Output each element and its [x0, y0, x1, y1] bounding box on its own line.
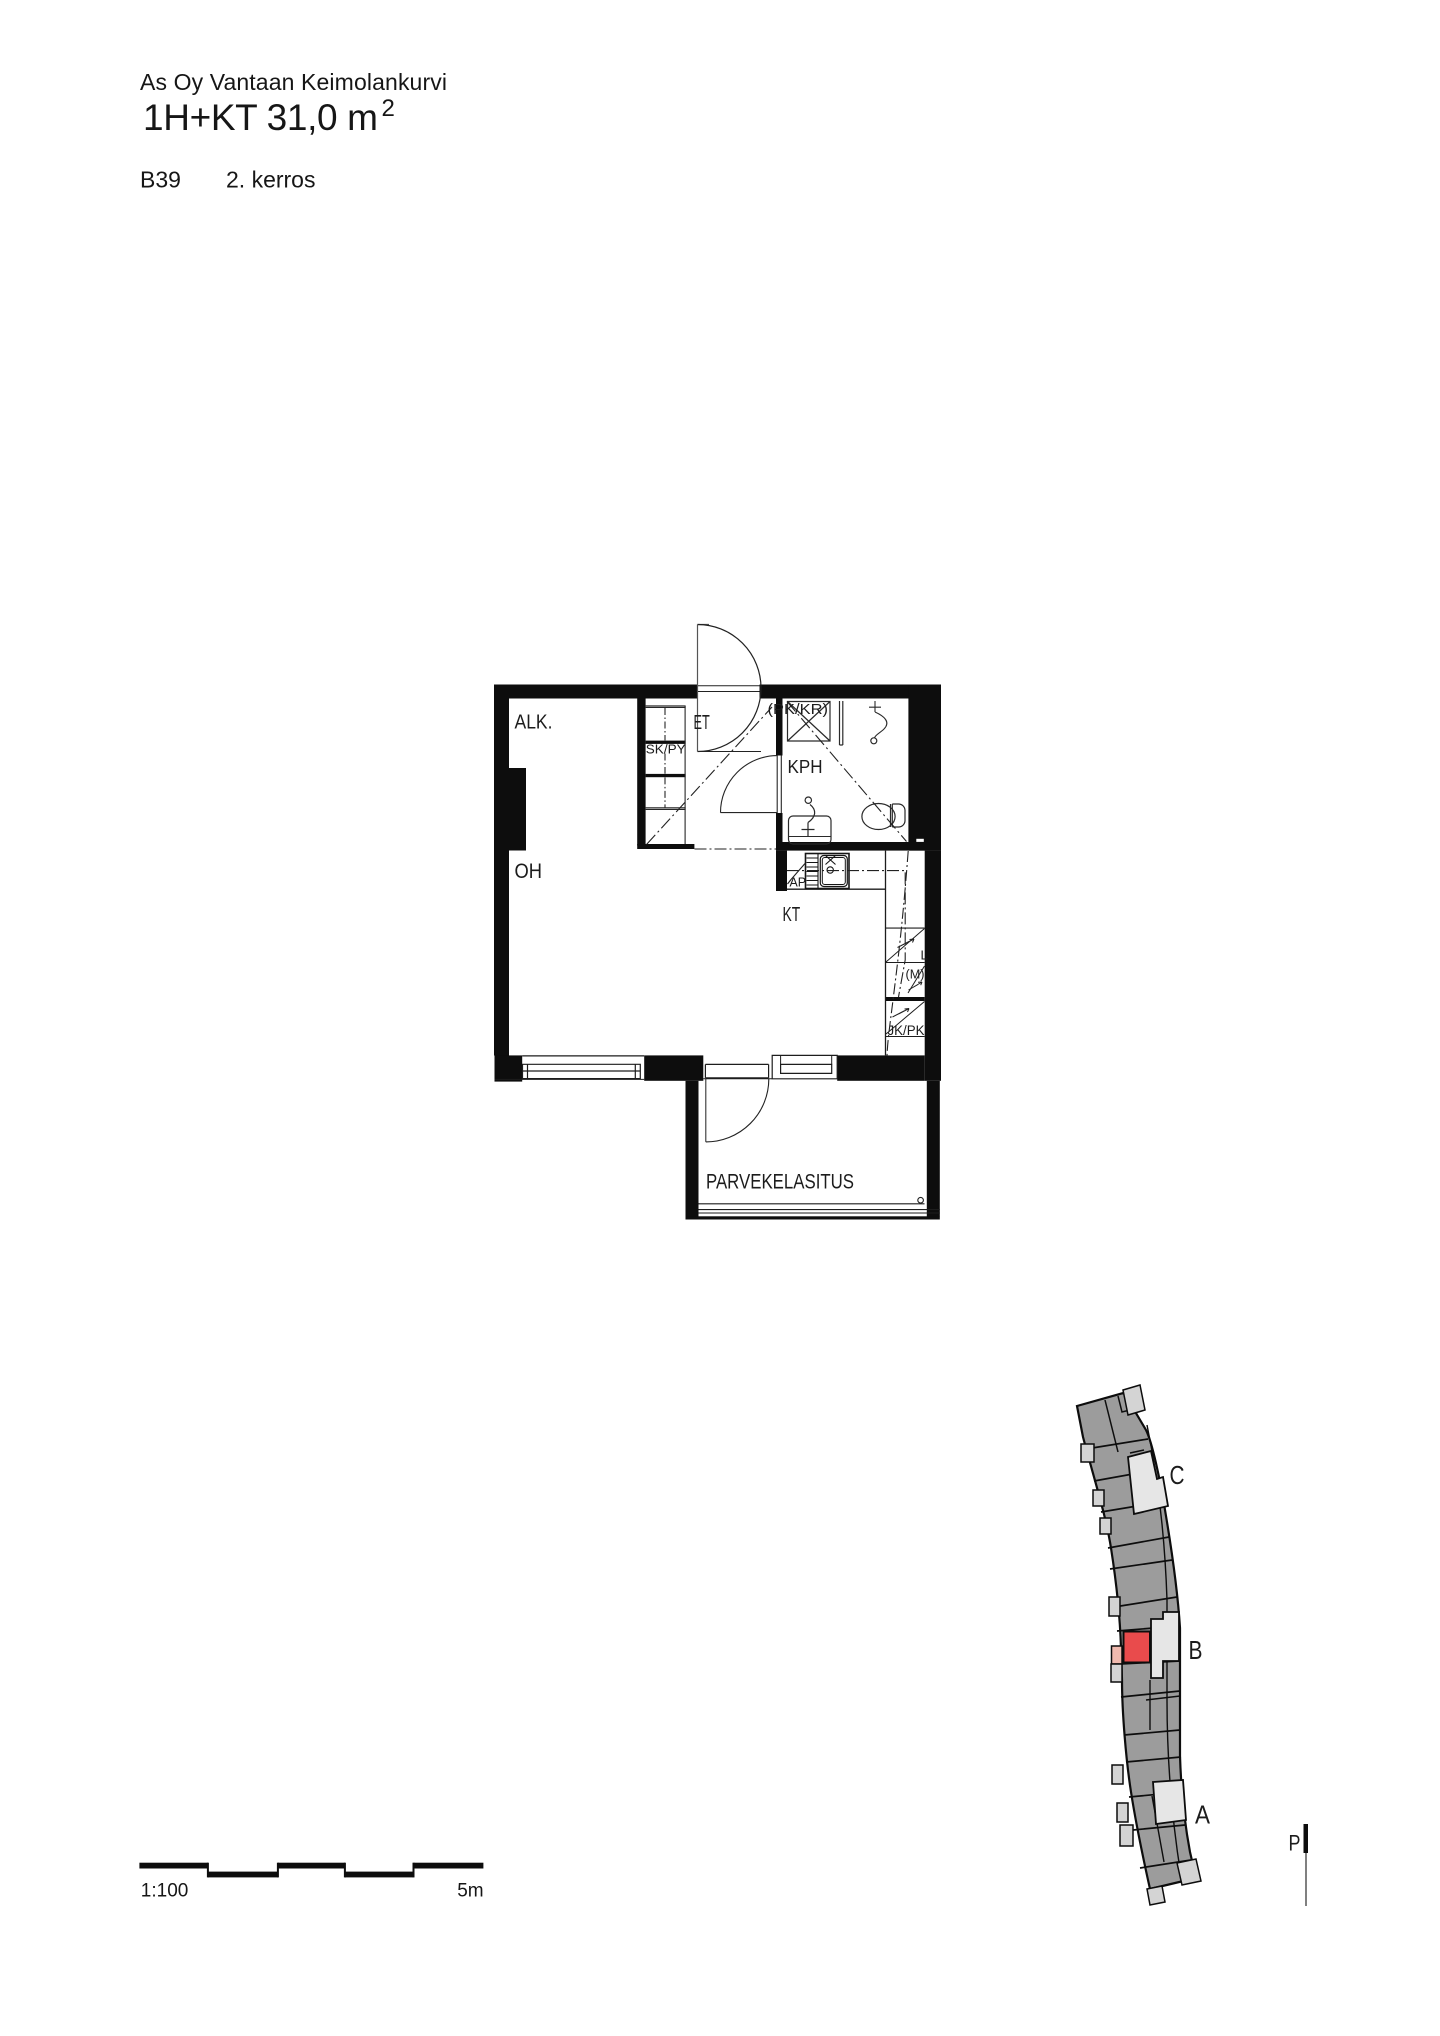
svg-text:SK/PY: SK/PY [646, 741, 686, 756]
svg-text:(M): (M) [906, 967, 925, 982]
svg-text:As Oy Vantaan Keimolankurvi: As Oy Vantaan Keimolankurvi [140, 69, 447, 95]
svg-text:ET: ET [694, 712, 710, 734]
svg-text:ALK.: ALK. [515, 711, 553, 734]
svg-text:5m: 5m [457, 1880, 483, 1901]
svg-text:A: A [1195, 1800, 1211, 1830]
svg-text:JK/PK: JK/PK [888, 1023, 925, 1038]
svg-text:L: L [921, 948, 928, 963]
svg-text:1:100: 1:100 [141, 1880, 189, 1901]
svg-text:C: C [1170, 1460, 1185, 1490]
svg-text:B: B [1189, 1635, 1203, 1665]
svg-text:PARVEKELASITUS: PARVEKELASITUS [706, 1171, 854, 1194]
svg-text:(PK/KR): (PK/KR) [768, 701, 829, 718]
svg-text:AP: AP [790, 875, 807, 890]
svg-text:KT: KT [783, 904, 801, 926]
svg-text:OH: OH [515, 860, 543, 883]
svg-text:KPH: KPH [788, 756, 823, 777]
svg-text:1H+KT 31,0 m: 1H+KT 31,0 m [143, 97, 378, 138]
svg-text:2. kerros: 2. kerros [226, 167, 315, 193]
svg-text:2: 2 [382, 95, 395, 122]
svg-text:B39: B39 [140, 167, 181, 193]
svg-text:P: P [1289, 1831, 1301, 1856]
